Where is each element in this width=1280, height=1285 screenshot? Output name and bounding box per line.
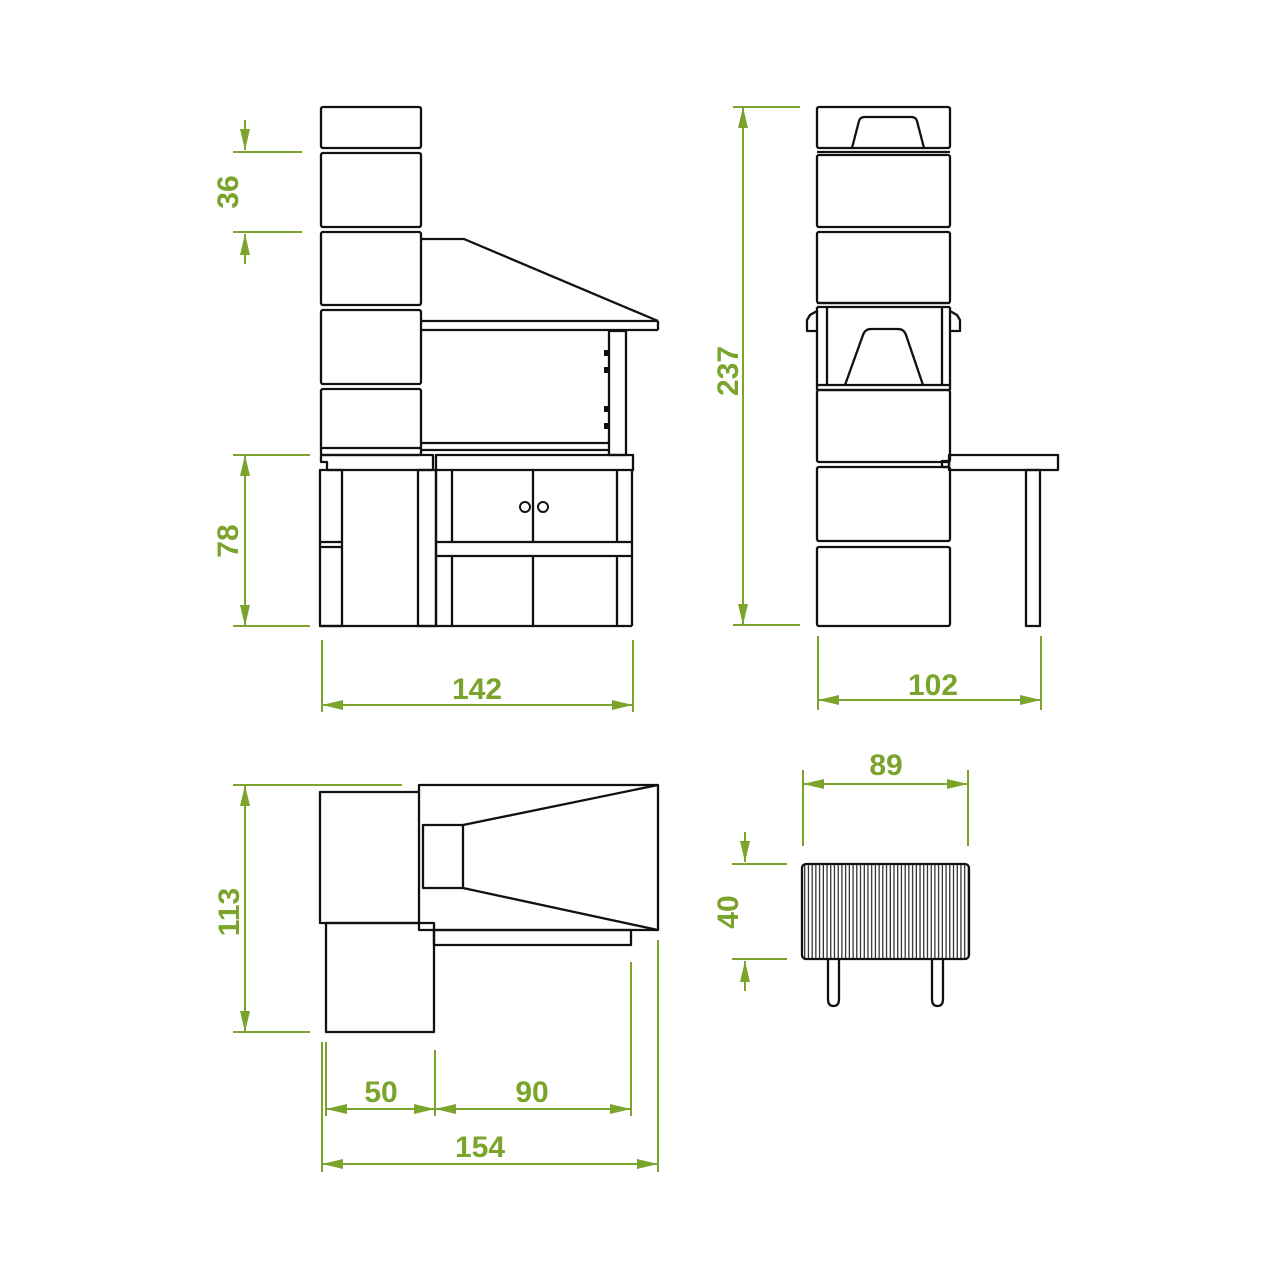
dim-label-side-table-width: 50 xyxy=(364,1076,397,1109)
side-firebox xyxy=(807,303,960,390)
front-chimney xyxy=(321,107,421,455)
base-middle-wall xyxy=(418,470,436,626)
dim-label-total-height: 237 xyxy=(712,346,745,396)
dimension-labels: 36 78 142 237 102 113 50 90 154 89 40 xyxy=(212,175,958,1164)
dim-label-firebox-width: 90 xyxy=(515,1076,548,1109)
door-knob-left xyxy=(520,502,530,512)
side-base xyxy=(817,390,950,626)
grate-leg-left xyxy=(828,959,839,1006)
cabinet-left-stile xyxy=(436,470,452,626)
base-left-wall-joint xyxy=(320,542,342,547)
firebox-right-post xyxy=(609,331,626,455)
chimney-block xyxy=(321,232,421,305)
side-chimney xyxy=(817,107,950,303)
dim-label-course-height: 36 xyxy=(212,175,245,208)
side-table-top xyxy=(949,455,1058,470)
base-block xyxy=(817,547,950,626)
dimension-lines xyxy=(233,107,1041,1172)
plan-base-column xyxy=(326,923,434,1032)
plan-worktop-edge xyxy=(434,930,631,945)
plan-view xyxy=(320,785,658,1032)
front-hood xyxy=(421,239,658,330)
dim-label-grate-depth: 40 xyxy=(712,895,745,928)
chimney-block xyxy=(321,153,421,227)
dim-label-total-width: 154 xyxy=(455,1131,505,1164)
grate-hook xyxy=(604,350,610,356)
side-view xyxy=(807,107,1058,626)
grate-hook xyxy=(604,423,610,429)
front-firebox xyxy=(421,331,626,455)
hood-slope-outline xyxy=(421,239,658,321)
chimney-block xyxy=(321,107,421,148)
grate-leg-right xyxy=(932,959,943,1006)
chimney-cap-block xyxy=(817,107,950,148)
base-block xyxy=(817,467,950,541)
worktop-left-slab xyxy=(321,455,433,470)
dim-label-base-height: 78 xyxy=(212,524,245,557)
chimney-block xyxy=(817,155,950,227)
front-base xyxy=(320,470,632,626)
grate-hook xyxy=(604,367,610,373)
plan-side-table xyxy=(320,792,421,923)
grate-view xyxy=(802,864,969,1006)
plan-hood-outline xyxy=(419,785,658,930)
dim-label-plan-depth: 113 xyxy=(213,888,246,936)
chimney-cap-top xyxy=(852,117,924,148)
grill-grate xyxy=(802,864,969,959)
dim-label-grate-width: 89 xyxy=(869,749,902,782)
chimney-block xyxy=(817,232,950,303)
hood-fascia xyxy=(421,321,658,330)
front-view xyxy=(320,107,658,626)
side-table xyxy=(942,455,1058,626)
chimney-block xyxy=(321,389,421,455)
fire-grate-silhouette xyxy=(845,329,923,385)
cabinet-shelf xyxy=(436,542,632,556)
worktop-right-slab xyxy=(436,455,633,470)
firebox-floor xyxy=(421,443,609,450)
side-table-tab xyxy=(942,461,949,467)
chimney-block xyxy=(321,310,421,384)
dim-label-front-width: 142 xyxy=(452,673,502,706)
drawing-canvas: 36 78 142 237 102 113 50 90 154 89 40 xyxy=(0,0,1280,1280)
grate-hook xyxy=(604,406,610,412)
door-knob-right xyxy=(538,502,548,512)
cabinet-right-stile xyxy=(617,470,632,626)
side-table-leg xyxy=(1026,470,1040,626)
firebox-chamber xyxy=(817,303,950,390)
dim-label-side-depth: 102 xyxy=(908,669,958,702)
base-block xyxy=(817,390,950,462)
technical-drawing: 36 78 142 237 102 113 50 90 154 89 40 xyxy=(0,0,1280,1280)
front-worktop xyxy=(321,455,633,470)
